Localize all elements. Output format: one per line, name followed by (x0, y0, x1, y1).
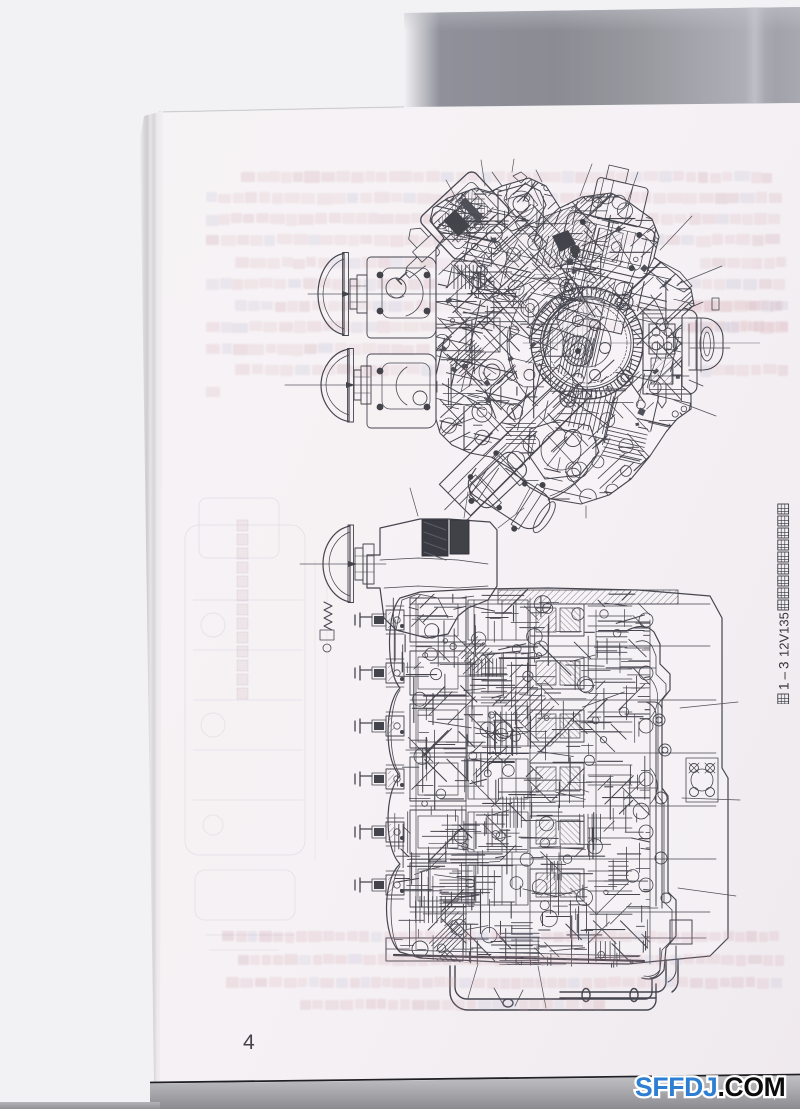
svg-text:SFFDJ.COM: SFFDJ.COM (635, 1072, 785, 1102)
